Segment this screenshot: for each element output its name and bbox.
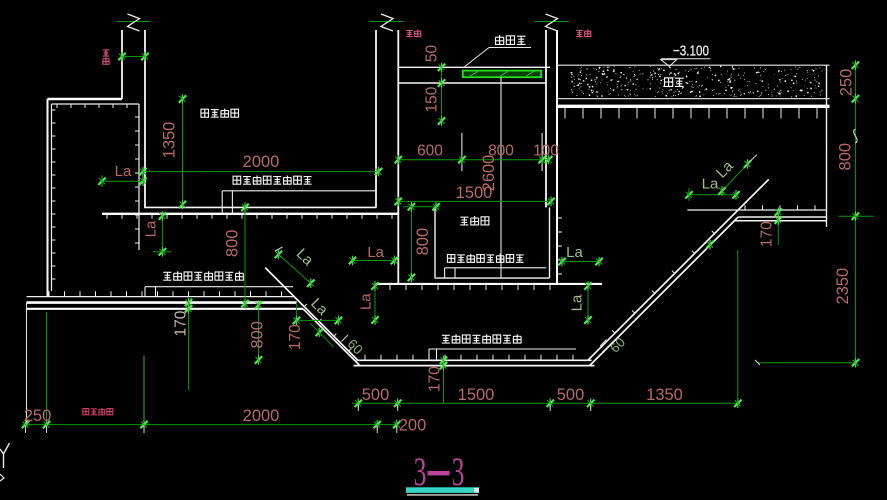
svg-text:100: 100 xyxy=(533,143,559,160)
svg-text:1350: 1350 xyxy=(646,386,683,404)
svg-text:2000: 2000 xyxy=(243,407,280,425)
svg-text:500: 500 xyxy=(362,386,390,404)
svg-text:La: La xyxy=(367,244,384,261)
svg-text:600: 600 xyxy=(417,143,443,160)
svg-text:800: 800 xyxy=(249,321,267,349)
svg-text:800: 800 xyxy=(224,230,242,258)
svg-text:800: 800 xyxy=(837,143,855,171)
svg-text:1350: 1350 xyxy=(161,122,179,159)
svg-text:250: 250 xyxy=(838,69,856,97)
svg-text:170: 170 xyxy=(427,366,444,392)
svg-text:150: 150 xyxy=(424,86,441,112)
svg-text:La: La xyxy=(143,220,160,237)
svg-text:500: 500 xyxy=(557,386,585,404)
svg-text:250: 250 xyxy=(24,407,52,425)
svg-text:La: La xyxy=(702,176,719,193)
svg-text:200: 200 xyxy=(399,417,427,435)
svg-text:170: 170 xyxy=(759,221,776,247)
svg-text:1500: 1500 xyxy=(458,386,495,404)
svg-text:2000: 2000 xyxy=(243,153,280,171)
svg-text:50: 50 xyxy=(424,45,441,63)
svg-text:800: 800 xyxy=(414,228,432,256)
svg-text:−3.100: −3.100 xyxy=(673,44,709,60)
svg-text:2350: 2350 xyxy=(834,268,852,305)
svg-text:La: La xyxy=(566,244,583,261)
svg-text:170: 170 xyxy=(287,324,304,350)
svg-text:La: La xyxy=(358,293,375,310)
svg-text:1500: 1500 xyxy=(456,184,493,202)
svg-text:La: La xyxy=(115,163,132,180)
svg-text:170: 170 xyxy=(173,310,190,336)
svg-text:La: La xyxy=(569,294,586,311)
